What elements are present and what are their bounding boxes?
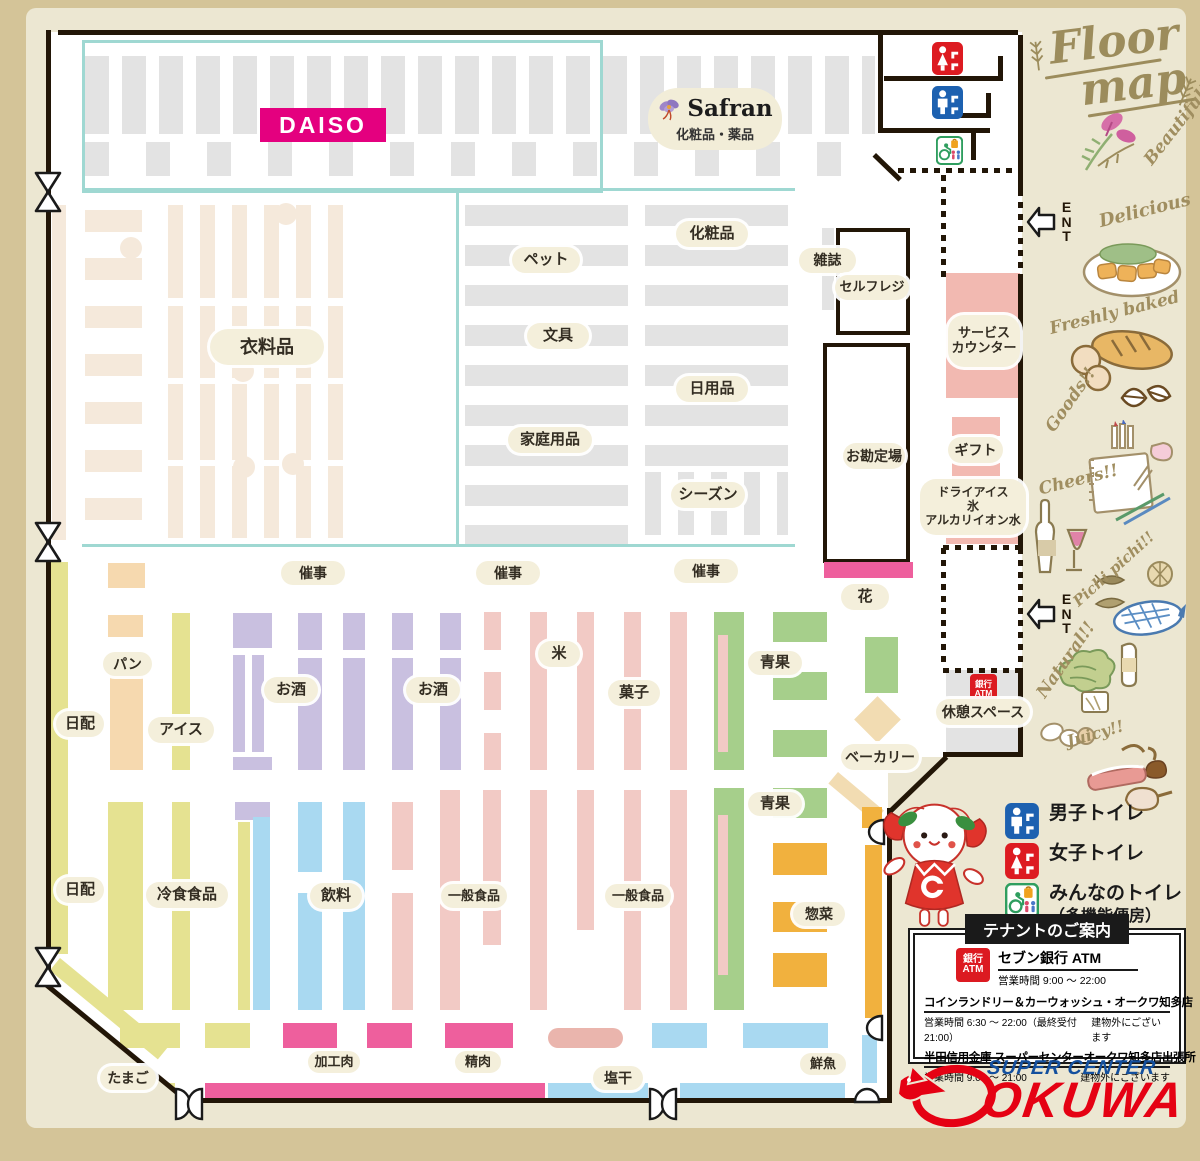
wall-segment <box>971 133 976 160</box>
shelf-fixture <box>298 893 322 1010</box>
legend-women: 女子トイレ <box>1005 843 1144 879</box>
shelf-fixture <box>110 672 143 770</box>
shelf-fixture <box>282 453 304 475</box>
eggs-label: たまご <box>100 1066 156 1090</box>
shelf-fixture <box>773 672 827 700</box>
dotted-wall-segment <box>943 545 1023 550</box>
shelf-fixture <box>952 417 1000 436</box>
safran-badge: Safran 化粧品・薬品 <box>648 88 782 150</box>
rest_space-label: 休憩スペース <box>936 699 1030 725</box>
tenant-title: テナントのご案内 <box>965 914 1129 944</box>
sweets-label: 菓子 <box>608 680 660 706</box>
zone-line <box>82 188 795 191</box>
shelf-fixture <box>233 613 272 648</box>
shelf-fixture <box>670 612 687 770</box>
ice_cream-label: アイス <box>148 717 214 743</box>
frozen_food-label: 冷食食品 <box>146 882 228 908</box>
entrance-bottom: ENT <box>1026 592 1074 636</box>
shelf-fixture <box>172 613 190 770</box>
tenant-atm-name: セブン銀行 ATM <box>998 948 1138 971</box>
legend-men-label: 男子トイレ <box>1049 803 1144 825</box>
shelf-fixture <box>275 203 297 225</box>
shelf-fixture <box>392 613 413 650</box>
shelf-fixture <box>108 802 143 1010</box>
general_food-label: 一般食品 <box>605 884 671 908</box>
event-label: 催事 <box>281 561 345 585</box>
shelf-fixture <box>108 563 145 588</box>
door-icon <box>852 1086 882 1104</box>
season-label: シーズン <box>671 482 745 508</box>
shelf-fixture <box>392 893 413 1010</box>
shelf-fixture <box>530 790 547 1010</box>
safran-name: Safran <box>687 97 772 120</box>
atm-icon-line2: ATM <box>975 689 993 698</box>
double-door-icon <box>168 1086 210 1122</box>
men-toilet-icon <box>1005 803 1039 839</box>
shelf-fixture <box>670 790 687 1010</box>
rice-label: 米 <box>538 641 580 667</box>
shelf-fixture <box>743 1023 828 1048</box>
bakery-label: ベーカリー <box>841 744 919 770</box>
shelf-fixture <box>392 802 413 870</box>
shelf-fixture <box>440 658 461 770</box>
door-icon <box>33 945 63 989</box>
ent-label: ENT <box>1059 200 1074 244</box>
beverages-label: 飲料 <box>310 883 362 909</box>
household-label: 家庭用品 <box>508 427 592 453</box>
clothing-label: 衣料品 <box>210 329 324 365</box>
bread-label: パン <box>103 652 152 676</box>
magazines-label: 雑誌 <box>799 248 856 273</box>
shelf-fixture <box>865 637 898 693</box>
dotted-wall-segment <box>1018 548 1023 668</box>
door-icon <box>33 520 63 564</box>
shelf-fixture <box>440 613 461 650</box>
daily_goods-label: 日用品 <box>676 376 748 402</box>
shelf-fixture <box>52 205 66 540</box>
tenant-row-hours: 営業時間 6:30 ～ 22:00（最終受付 21:00） <box>924 1014 1091 1044</box>
wall-segment <box>1018 35 1023 190</box>
shelf-fixture <box>367 1023 412 1048</box>
shelf-fixture <box>298 658 322 770</box>
dotted-wall-segment <box>1018 190 1023 278</box>
page-title: Floor map <box>1025 10 1200 122</box>
dry_ice-label: ドライアイス 氷 アルカリイオン水 <box>920 479 1026 535</box>
shelf-fixture <box>253 817 270 1010</box>
dotted-wall-segment <box>941 175 946 278</box>
mascot-character <box>880 782 995 932</box>
shelf-fixture <box>238 822 250 1010</box>
meat-doodle <box>1082 734 1186 812</box>
self_checkout-label: セルフレジ <box>835 275 909 300</box>
bank-atm-icon: 銀行 ATM <box>956 948 990 982</box>
dotted-wall-segment <box>898 168 1015 173</box>
wall-segment <box>186 1098 892 1103</box>
event-label: 催事 <box>476 561 540 585</box>
processed_meat-label: 加工肉 <box>308 1051 360 1073</box>
safran-subtitle: 化粧品・薬品 <box>676 124 754 143</box>
shelf-fixture <box>577 612 594 770</box>
shelf-fixture <box>233 757 272 770</box>
sake-label: お酒 <box>264 677 318 703</box>
shelf-fixture <box>530 612 547 770</box>
women-toilet-icon <box>1005 843 1039 879</box>
shelf-fixture <box>484 672 501 710</box>
shelf-fixture <box>548 1028 623 1048</box>
tenant-row-name: コインランドリー＆カーウォッシュ・オークワ知多店 <box>924 994 1170 1013</box>
wall-segment <box>884 76 1003 81</box>
meat-label: 精肉 <box>455 1051 501 1073</box>
wall-segment <box>878 35 883 133</box>
ent-label: ENT <box>1059 592 1074 636</box>
produce-label: 青果 <box>748 792 802 816</box>
shelf-fixture <box>773 953 827 987</box>
salted_dried-label: 塩干 <box>593 1066 643 1090</box>
legend-everyone-label: みんなのトイレ <box>1049 883 1182 904</box>
wall-segment <box>58 30 1018 35</box>
zone-line <box>82 544 795 547</box>
produce-label: 青果 <box>748 651 802 675</box>
dotted-wall-segment <box>943 668 1023 673</box>
shelf-fixture <box>252 655 264 752</box>
shelf-fixture <box>298 802 322 872</box>
entrance-top: ENT <box>1026 200 1074 244</box>
shelf-fixture <box>862 1035 877 1083</box>
tenant-info-panel: テナントのご案内 銀行 ATM セブン銀行 ATM 営業時間 9:00 ～ 22… <box>908 928 1186 1064</box>
wall-segment <box>943 752 1023 757</box>
floor-map-root: DAISO Safran 化粧品・薬品 銀行 ATM ENT <box>0 0 1200 1161</box>
left-arrow-icon <box>1026 597 1056 631</box>
shelf-fixture <box>484 612 501 650</box>
shelf-fixture <box>773 612 827 642</box>
wall-segment <box>998 56 1003 81</box>
left-arrow-icon <box>1026 205 1056 239</box>
gift-label: ギフト <box>948 437 1003 463</box>
shelf-fixture <box>343 613 365 650</box>
shelf-fixture <box>952 463 1000 479</box>
shelf-fixture <box>718 635 728 752</box>
shelf-fixture <box>718 815 728 975</box>
shelf-fixture <box>120 237 142 259</box>
logo-okuwa: OKUWA <box>979 1078 1187 1123</box>
shelf-fixture <box>652 1023 707 1048</box>
shelf-fixture <box>824 562 913 578</box>
sake-label: お酒 <box>406 677 460 703</box>
shelf-fixture <box>298 613 322 650</box>
checkout-label: お勘定場 <box>843 443 905 469</box>
double-door-icon <box>642 1086 684 1122</box>
service_counter-label: サービス カウンター <box>948 315 1020 367</box>
general_food-label: 一般食品 <box>441 884 507 908</box>
zone-line <box>456 191 459 544</box>
shelf-fixture <box>283 1023 337 1048</box>
shelf-fixture <box>773 730 827 757</box>
accessible-toilet-icon <box>936 136 963 165</box>
safran-flower-icon <box>657 96 683 122</box>
shelf-fixture <box>343 658 365 770</box>
legend-women-label: 女子トイレ <box>1049 843 1144 865</box>
shelf-fixture <box>108 615 143 637</box>
shelf-fixture <box>233 456 255 478</box>
shelf-fixture <box>120 1023 180 1048</box>
women-toilet-icon <box>932 42 963 75</box>
flowers-label: 花 <box>841 584 889 610</box>
shelf-fixture <box>233 655 245 752</box>
pet-label: ペット <box>512 247 580 273</box>
dotted-wall-segment <box>941 548 946 668</box>
door-icon <box>864 1014 886 1042</box>
event-label: 催事 <box>674 559 738 583</box>
tenant-atm-hours: 営業時間 9:00 ～ 22:00 <box>998 971 1138 988</box>
wine-doodle <box>1026 492 1098 576</box>
okuwa-logo: SUPER CENTER OKUWA <box>896 1058 1186 1128</box>
men-toilet-icon <box>932 86 963 119</box>
shelf-fixture <box>445 1023 513 1048</box>
shelf-fixture <box>205 1023 250 1048</box>
shelf-fixture <box>773 843 827 875</box>
daily-label: 日配 <box>56 877 104 903</box>
shelf-fixture <box>483 790 501 945</box>
deli-label: 惣菜 <box>793 902 845 926</box>
wheat-icon <box>1026 32 1049 74</box>
shelf-fixture <box>392 658 413 770</box>
clothing-fixtures <box>85 210 142 535</box>
atm-icon-line2: ATM <box>963 965 984 976</box>
tenant-row-note: 建物外にございます <box>1091 1014 1170 1044</box>
daily-label: 日配 <box>56 711 104 737</box>
clothing-fixtures <box>168 205 350 298</box>
shelf-fixture <box>577 790 594 930</box>
fresh_fish-label: 鮮魚 <box>800 1053 846 1075</box>
daiso-logo: DAISO <box>260 108 386 142</box>
stationery-label: 文具 <box>527 323 589 349</box>
legend-men: 男子トイレ <box>1005 803 1144 839</box>
clothing-fixtures <box>168 466 350 538</box>
door-icon <box>33 170 63 214</box>
cosmetics-label: 化粧品 <box>676 221 748 247</box>
shelf-fixture <box>484 733 501 770</box>
wall-segment <box>986 93 991 118</box>
clothing-fixtures <box>168 384 350 460</box>
